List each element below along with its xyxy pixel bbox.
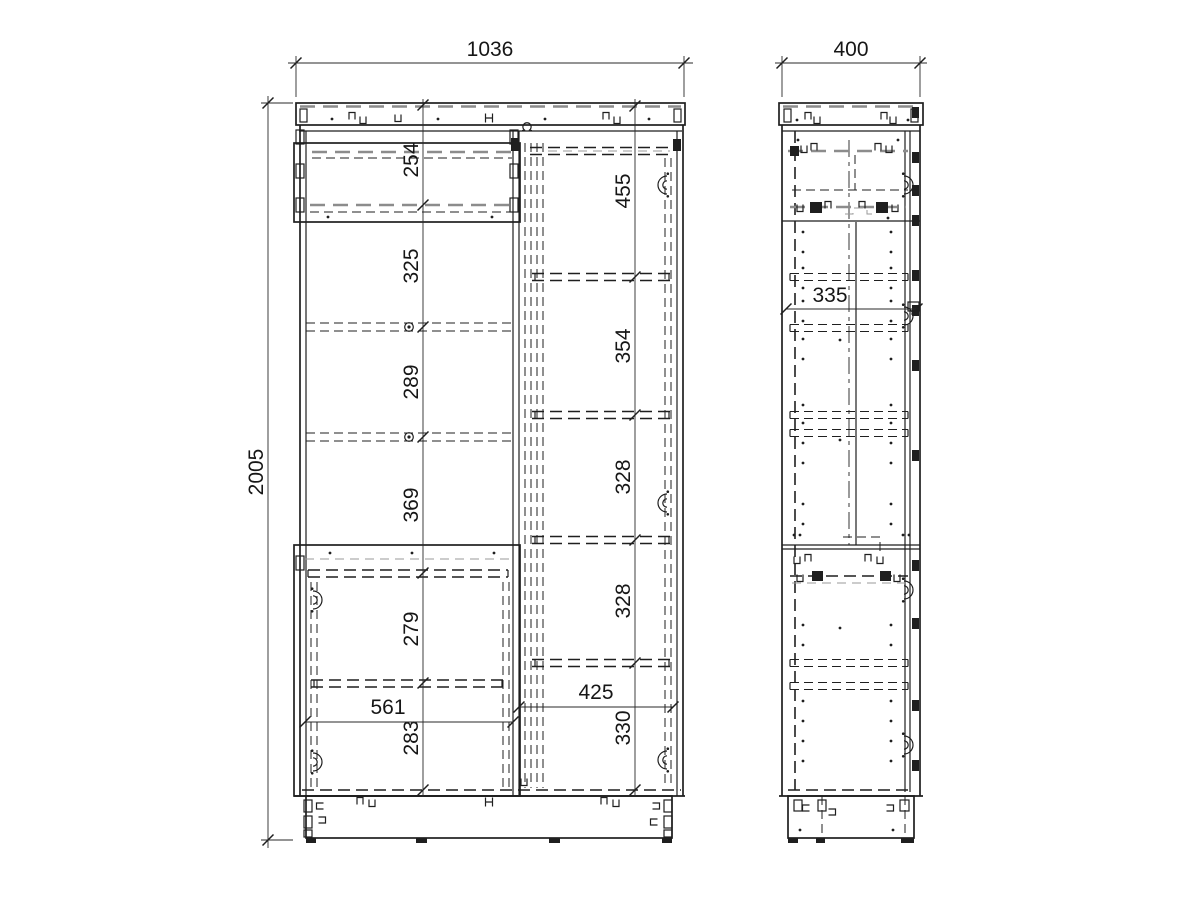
hinge-symbols-right-door [658, 172, 669, 772]
technical-drawing: 1036 2005 254 325 289 369 279 283 [0, 0, 1197, 897]
side-plinth [788, 796, 914, 843]
front-lower-left-cabinet [294, 545, 520, 796]
dim-overall-depth: 400 [775, 38, 927, 97]
dim-label-254: 254 [400, 142, 423, 177]
dim-label-328a: 328 [612, 459, 635, 494]
hinge-symbols-lower-left-door [311, 587, 322, 774]
dim-label-455: 455 [612, 173, 635, 208]
dim-label-overall-width: 1036 [467, 38, 514, 61]
side-top-cornice [779, 103, 923, 131]
drawing-canvas: 1036 2005 254 325 289 369 279 283 [0, 0, 1197, 897]
dim-overall-width: 1036 [288, 38, 693, 97]
front-center-divider [511, 123, 543, 796]
front-dimensions: 1036 2005 254 325 289 369 279 283 [245, 38, 693, 848]
front-right-shelf-4 [532, 660, 672, 667]
dim-label-overall-height: 2005 [245, 449, 268, 496]
front-right-shelf-2 [532, 412, 672, 419]
side-carcass [779, 107, 923, 796]
front-plinth [304, 796, 672, 843]
dim-label-561: 561 [370, 696, 405, 719]
side-hinge-symbols [902, 172, 913, 757]
dim-right-chain: 455 354 328 328 330 [612, 99, 641, 797]
dim-label-325: 325 [400, 248, 423, 283]
front-lower-shelf [311, 680, 505, 687]
dim-label-335: 335 [812, 284, 847, 307]
back-panel-fittings [912, 107, 919, 771]
side-shelf-row-6 [790, 683, 908, 690]
dim-label-overall-depth: 400 [833, 38, 868, 61]
front-top-cornice [296, 103, 685, 131]
dim-right-inner-width: 425 [514, 681, 679, 713]
side-top-drawer-section [788, 139, 908, 220]
dim-label-354: 354 [612, 328, 635, 363]
dim-label-369: 369 [400, 487, 423, 522]
side-shelf-row-5 [790, 660, 908, 667]
dim-overall-height: 2005 [245, 96, 293, 848]
dim-label-279: 279 [400, 611, 423, 646]
dim-label-425: 425 [578, 681, 613, 704]
front-right-shelf-3 [532, 537, 672, 544]
dim-label-328b: 328 [612, 583, 635, 618]
dim-label-289: 289 [400, 364, 423, 399]
side-mid-junction [782, 534, 920, 583]
side-view [779, 103, 923, 843]
dim-label-283: 283 [400, 720, 423, 755]
dim-label-330: 330 [612, 710, 635, 745]
front-right-shelf-1 [532, 274, 672, 281]
